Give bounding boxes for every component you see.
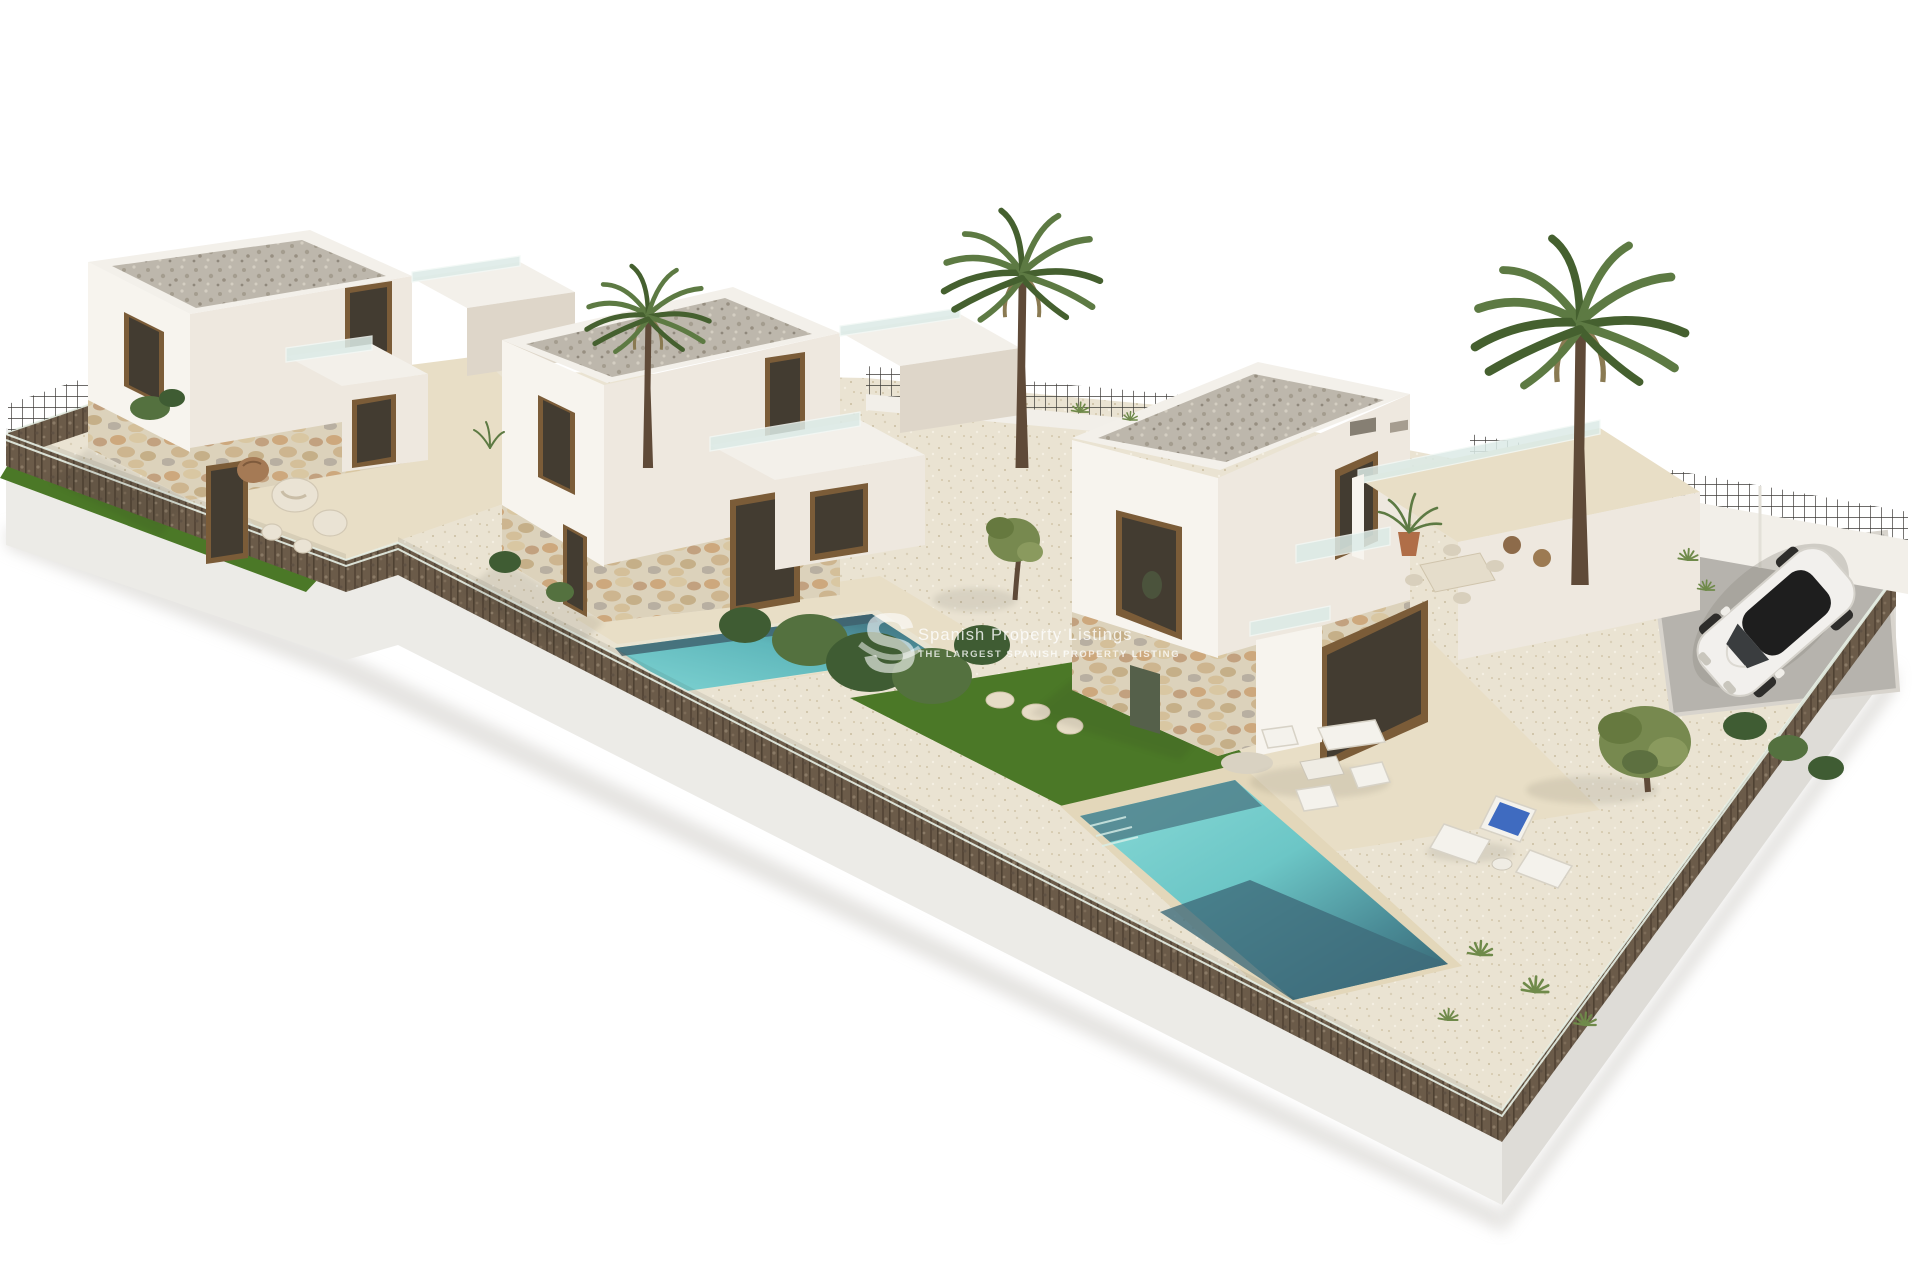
villa-middle-door-west <box>563 524 587 617</box>
property-render: S Spanish Property Listings THE LARGEST … <box>0 0 1920 1280</box>
villa-right-door-green <box>1130 665 1160 734</box>
watermark-logo: S <box>862 596 918 690</box>
watermark-subtitle: THE LARGEST SPANISH PROPERTY LISTING <box>918 649 1180 660</box>
render-stage: S Spanish Property Listings THE LARGEST … <box>0 0 1920 1280</box>
watermark-title: Spanish Property Listings <box>918 626 1133 644</box>
